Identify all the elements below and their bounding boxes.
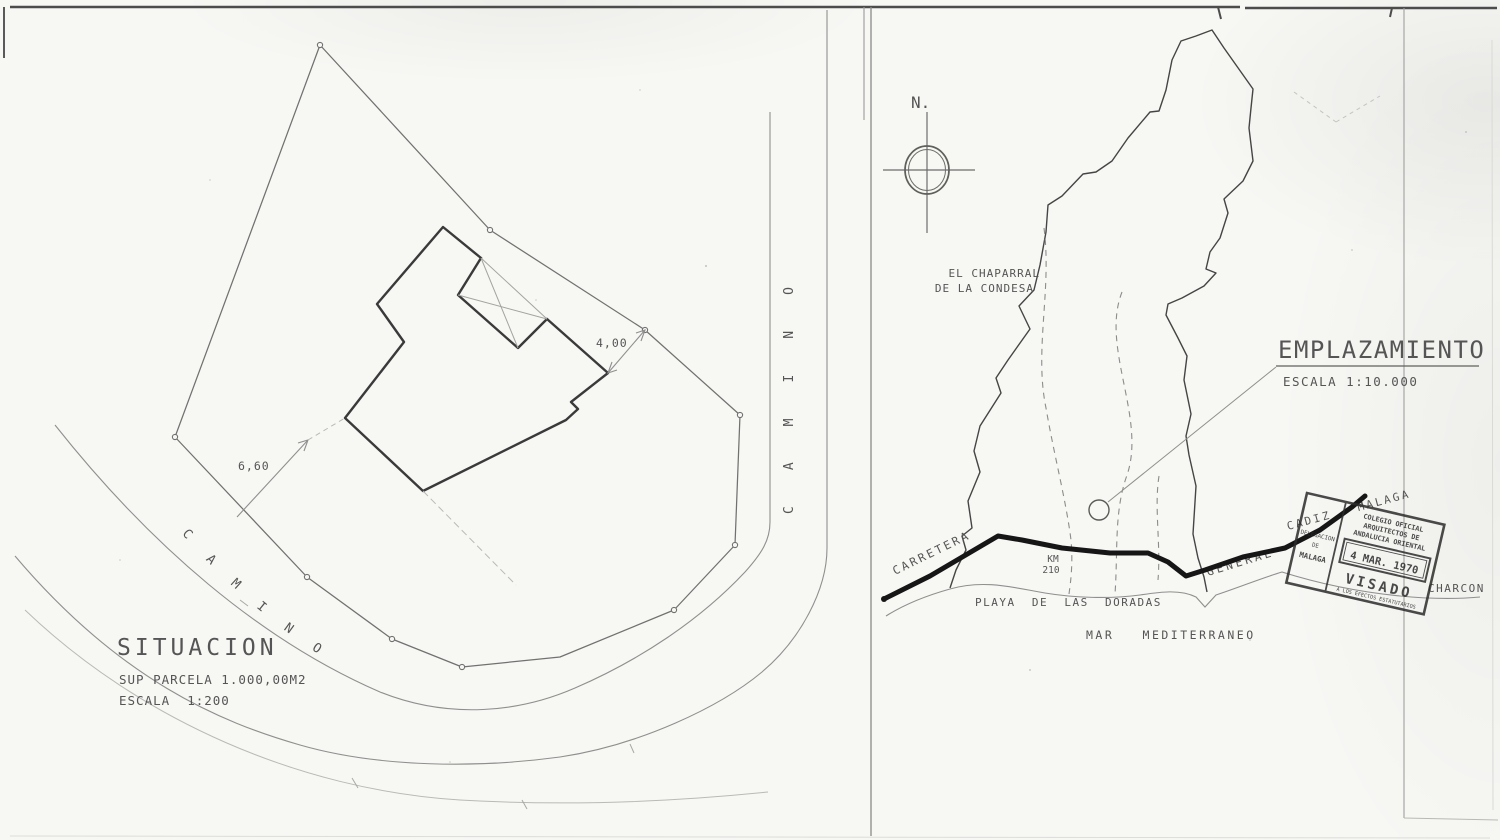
north-arrow: N. [883,93,975,233]
dimension-4-00-label: 4,00 [596,336,628,350]
building-terrace-walls [458,258,547,348]
chaparral-label-line2: DE LA CONDESA [935,282,1034,295]
km-value: 210 [1042,565,1059,576]
top-border-tick-2 [1390,8,1392,17]
far-right-edge [1492,40,1493,810]
site-circle-marker [1089,500,1109,520]
dimension-6-60-label: 6,60 [238,459,270,473]
top-border-tick-1 [1218,7,1221,19]
parcel-boundary [175,45,740,667]
setback-line [423,491,516,585]
sheet-borders [4,7,1498,838]
situacion-area-label: SUP PARCELA 1.000,00M2 [119,672,307,687]
dimension-6-60: 6,60 [237,418,345,517]
emplazamiento-scale-label: ESCALA 1:10.000 [1283,374,1418,389]
emplazamiento-map: N. EL CHAPARRAL DE LA CONDESA EMPLAZAMIE… [881,30,1485,642]
situacion-title-block: SITUACION SUP PARCELA 1.000,00M2 ESCALA … [117,635,307,708]
parcel-boundary-nodes [172,42,742,669]
headland-outline [950,30,1253,592]
stamp-delegation-line3: MALAGA [1298,550,1327,565]
emplazamiento-title: EMPLAZAMIENTO [1278,336,1485,364]
faint-pencil-marks [1294,92,1380,122]
chaparral-label-line1: EL CHAPARRAL [949,267,1040,280]
charcon-label: CHARCON [1428,582,1485,595]
scanned-site-plan-sheet: 4,00 6,60 CAMINO CAMINO SITUAC [0,0,1500,840]
contour-line-3 [1157,476,1159,580]
site-leader-line [1108,367,1276,502]
playa-label: PLAYA DE LAS DORADAS [975,596,1162,609]
mar-label: MAR MEDITERRANEO [1086,628,1256,642]
emplazamiento-title-block: EMPLAZAMIENTO ESCALA 1:10.000 [1089,336,1485,520]
carretera-label: CARRETERA [890,528,972,578]
contour-line-2 [1115,292,1132,594]
contour-line-1 [1042,228,1072,594]
situacion-scale-label: ESCALA 1:200 [119,693,230,708]
km-marker: KM 210 [1042,554,1059,576]
situacion-title: SITUACION [117,635,278,661]
chaparral-label: EL CHAPARRAL DE LA CONDESA [935,267,1040,295]
camino-vertical-label: CAMINO [782,251,797,514]
stamp-delegation-line2: DE [1311,543,1320,551]
situacion-plan: 4,00 6,60 CAMINO CAMINO SITUAC [15,10,827,809]
bottom-border [10,836,1490,838]
dimension-4-00: 4,00 [596,330,645,373]
north-label: N. [911,93,930,112]
km-label: KM [1047,554,1059,565]
camino-upper-edge [55,112,770,710]
bottom-border-right [1404,818,1498,820]
